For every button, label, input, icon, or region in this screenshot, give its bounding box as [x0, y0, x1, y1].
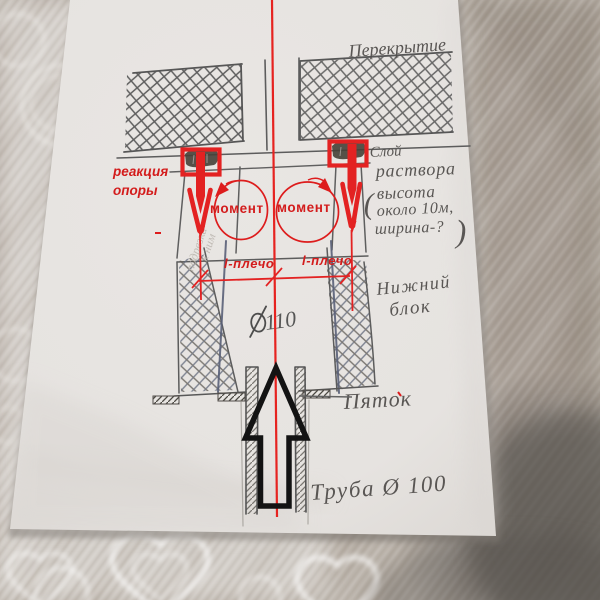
svg-text:): )	[453, 213, 467, 249]
svg-text:ширина-?: ширина-?	[375, 219, 445, 238]
svg-text:l-плечо: l-плечо	[302, 253, 352, 268]
svg-text:момент: момент	[210, 201, 264, 216]
svg-text:Слой: Слой	[369, 143, 402, 161]
svg-text:Пяток: Пяток	[342, 385, 413, 414]
svg-text:момент: момент	[277, 200, 331, 215]
svg-text:110: 110	[263, 306, 298, 335]
svg-text:опоры: опоры	[113, 183, 158, 198]
svg-text:раствора: раствора	[373, 158, 456, 181]
svg-text:блок: блок	[388, 296, 432, 321]
svg-text:l-плечо: l-плечо	[224, 256, 274, 271]
svg-text:реакция: реакция	[112, 164, 168, 179]
